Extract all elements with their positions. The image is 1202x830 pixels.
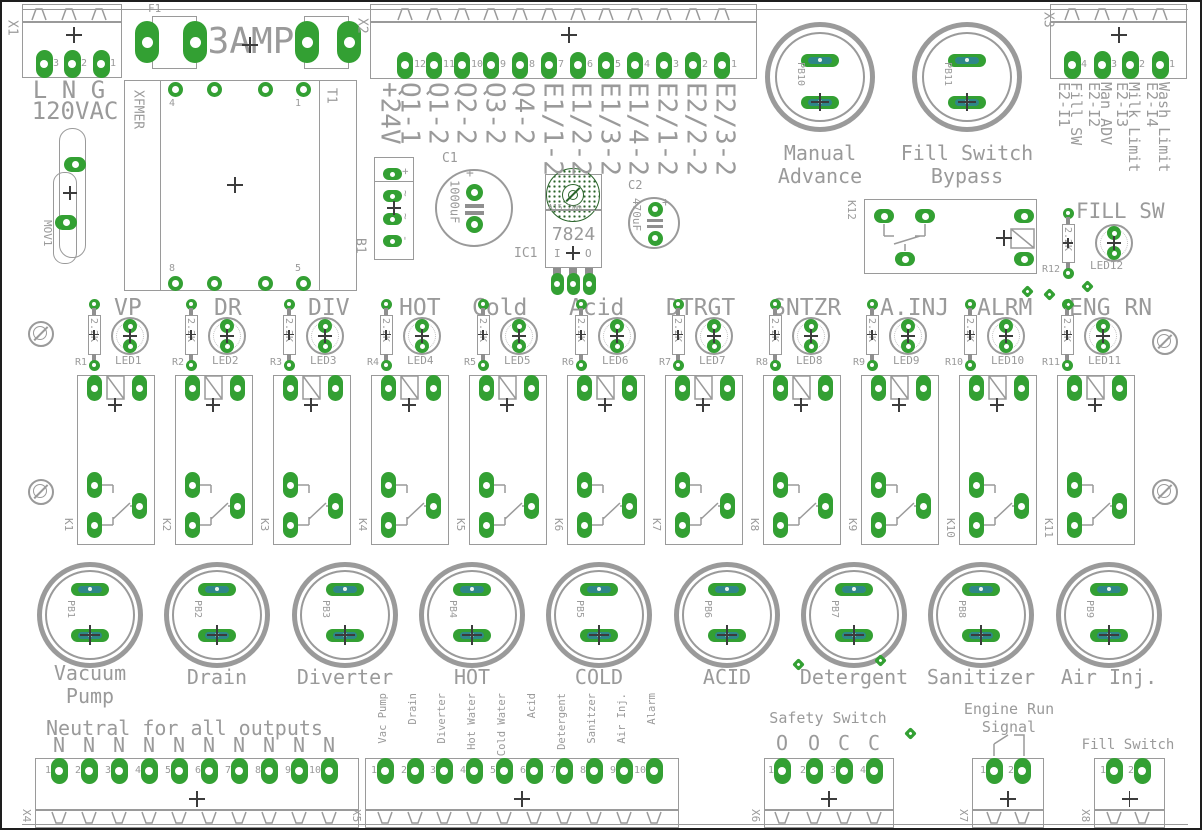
fuse-pad[interactable]	[183, 21, 207, 63]
pcb-layout-canvas[interactable]: 321X1LNG120VACF13AMP4185XFMERT1MOV1B1+~~…	[0, 0, 1202, 830]
x5-signal-label: Air Inj.	[619, 693, 627, 744]
origin-cross	[387, 201, 401, 215]
relay-k6-ref: K6	[554, 518, 562, 531]
x2-pin-number: 2	[702, 60, 708, 70]
x4-pin-number: 5	[155, 766, 171, 776]
fuse-pad[interactable]	[135, 21, 159, 63]
mounting-hole[interactable]	[1152, 329, 1178, 355]
relay-k6-pad[interactable]	[577, 375, 592, 401]
mounting-hole[interactable]	[28, 321, 54, 347]
led-led4-ref: LED4	[407, 355, 434, 366]
led-led1-ref: LED1	[115, 355, 142, 366]
resistor-r11-pad[interactable]	[1062, 360, 1073, 371]
relay-k6-pad[interactable]	[622, 493, 637, 519]
relay-k10-pad[interactable]	[1014, 375, 1029, 401]
pad-x3-3[interactable]	[1094, 51, 1111, 79]
resistor-r3-pad[interactable]	[284, 360, 295, 371]
bridge-pin-label: ~	[401, 213, 409, 220]
button-pb11-label: Bypass	[887, 166, 1047, 186]
button-pb5-pad[interactable]	[580, 583, 618, 596]
resistor-r6-pad[interactable]	[576, 360, 587, 371]
bridge-pin-label: ~	[401, 190, 409, 197]
connector-x4-ref: X4	[22, 809, 30, 822]
origin-cross	[512, 329, 526, 343]
x7-pin-number: 2	[998, 766, 1014, 776]
pad-x2-11[interactable]	[426, 52, 442, 79]
relay-k1-pad[interactable]	[132, 375, 147, 401]
cap1-polarity-bar	[465, 211, 484, 215]
x5-signal-label: Sanitzer	[589, 693, 597, 744]
relay-k6-pad[interactable]	[622, 375, 637, 401]
relay-k10-pad[interactable]	[969, 375, 984, 401]
x5-pin-number: 10	[630, 766, 646, 776]
button-pb8-pad[interactable]	[962, 583, 1000, 596]
pad-x2-8[interactable]	[512, 52, 528, 79]
resistor-r4-pad[interactable]	[381, 360, 392, 371]
transformer-pad[interactable]	[168, 82, 183, 97]
x2-wire-openings	[370, 4, 757, 22]
origin-cross	[999, 329, 1013, 343]
cap2-value: 470uF	[632, 198, 640, 231]
relay-k9-pad[interactable]	[871, 375, 886, 401]
transformer-pad[interactable]	[258, 276, 273, 291]
pad-x2-12[interactable]	[397, 52, 413, 79]
connector-x2-ref: X2	[357, 18, 366, 34]
regulator-pin-in: I	[554, 248, 561, 259]
x4-wire-label: N	[79, 735, 99, 755]
origin-cross	[284, 330, 294, 340]
x2-signal-label: Q3-2	[485, 82, 504, 145]
led-led9-ref: LED9	[893, 355, 920, 366]
pad-x2-5[interactable]	[598, 52, 614, 79]
x2-signal-label: Q2-2	[456, 82, 475, 145]
origin-cross	[598, 398, 612, 412]
relay-k3-pad[interactable]	[283, 472, 298, 498]
relay-k3-pad[interactable]	[328, 375, 343, 401]
via[interactable]	[1081, 280, 1094, 293]
pad-x2-2[interactable]	[685, 52, 701, 79]
origin-cross	[462, 625, 482, 645]
relay-k4-pad[interactable]	[381, 375, 396, 401]
relay-k12-pad[interactable]	[1014, 209, 1034, 223]
transformer-pin-number: 1	[295, 99, 301, 109]
relay-k1-ref: K1	[64, 518, 72, 531]
x1-voltage-label: 120VAC	[31, 99, 119, 123]
led-led5-ref: LED5	[504, 355, 531, 366]
bridge-pin-label: +	[401, 168, 409, 175]
x2-pin-number: 4	[644, 60, 650, 70]
relay-k5-pad[interactable]	[524, 375, 539, 401]
cap2-polarity: +	[662, 196, 669, 208]
regulator-pin-out: O	[585, 248, 592, 259]
origin-cross	[318, 329, 332, 343]
relay-k5-pad[interactable]	[479, 472, 494, 498]
x5-signal-label: Acid	[529, 693, 537, 718]
varistor-pad[interactable]	[55, 215, 77, 230]
relay-k4-pad[interactable]	[426, 493, 441, 519]
relay-k12-pad[interactable]	[915, 209, 935, 223]
pad-x8-2[interactable]	[1134, 758, 1151, 784]
transformer-pad[interactable]	[207, 82, 222, 97]
transformer-pad[interactable]	[258, 82, 273, 97]
relay-k8-pad[interactable]	[773, 512, 788, 538]
resistor-r10-pad[interactable]	[965, 360, 976, 371]
button-pb6-ref: PB6	[704, 600, 711, 618]
relay-k1-pad[interactable]	[87, 472, 102, 498]
x5-pin-number: 9	[600, 766, 616, 776]
cap1-pad[interactable]	[466, 184, 483, 201]
x8-title: Fill Switch	[1068, 738, 1188, 752]
fill-sw-title: FILL SW	[1076, 201, 1165, 222]
origin-cross	[108, 398, 122, 412]
cap1-ref: C1	[442, 152, 458, 165]
x4-wire-label: N	[169, 735, 189, 755]
x2-pin-number: 3	[673, 60, 679, 70]
x8-pin-number: 2	[1118, 766, 1134, 776]
relay-k9-pad[interactable]	[871, 472, 886, 498]
x4-wire-label: N	[319, 735, 339, 755]
button-pb2-ref: PB2	[194, 600, 201, 618]
pad-x3-2[interactable]	[1122, 51, 1139, 79]
resistor-r5-pad[interactable]	[478, 360, 489, 371]
relay-k5-pad[interactable]	[479, 375, 494, 401]
x3-signal-name: Fill SW	[1070, 82, 1081, 145]
x3-pin-number: 2	[1139, 60, 1145, 70]
origin-cross	[304, 398, 318, 412]
x8-wire-openings	[1094, 810, 1165, 828]
relay-k10-pad[interactable]	[969, 512, 984, 538]
origin-cross	[717, 625, 737, 645]
resistor-r4-ref: R4	[359, 358, 379, 368]
cap1-pad[interactable]	[466, 216, 483, 233]
origin-cross	[415, 329, 429, 343]
origin-cross	[990, 398, 1004, 412]
x5-wire-openings	[365, 810, 679, 828]
x6-wire-label: C	[864, 733, 884, 753]
origin-cross	[696, 398, 710, 412]
origin-cross	[1111, 27, 1127, 43]
origin-cross	[770, 330, 780, 340]
x5-signal-label: Vac Pump	[380, 693, 388, 744]
origin-cross	[402, 398, 416, 412]
mounting-hole[interactable]	[28, 479, 54, 505]
relay-k7-pad[interactable]	[675, 512, 690, 538]
relay-k10-ref: K10	[946, 518, 954, 538]
origin-cross	[867, 330, 877, 340]
cap1-polarity-bar	[465, 204, 484, 208]
button-pb10-label: Manual	[740, 143, 900, 163]
connector-x3-ref: X3	[1043, 12, 1052, 28]
x3-wire-openings	[1050, 4, 1187, 22]
fuse-pad[interactable]	[295, 21, 319, 63]
origin-cross	[996, 230, 1012, 246]
resistor-r1-pad[interactable]	[89, 360, 100, 371]
cap1-value: 1000uF	[450, 180, 459, 223]
button-pb10-ref: PB10	[797, 62, 804, 86]
resistor-r2-ref: R2	[164, 358, 184, 368]
cap1-body[interactable]	[435, 169, 513, 247]
x7-pin-number: 1	[970, 766, 986, 776]
relay-k10-pad[interactable]	[1014, 493, 1029, 519]
button-pb6-pad[interactable]	[708, 583, 746, 596]
varistor-pad[interactable]	[64, 157, 86, 172]
relay-k10-pad[interactable]	[969, 472, 984, 498]
x2-signal-label: E1/3-2	[600, 82, 619, 176]
relay-k4-pad[interactable]	[381, 472, 396, 498]
origin-cross	[189, 791, 205, 807]
button-pb5-ref: PB5	[576, 600, 583, 618]
relay-k4-pad[interactable]	[381, 512, 396, 538]
pad-x2-7[interactable]	[541, 52, 557, 79]
x2-signal-label: E2/1-2	[657, 82, 676, 176]
button-pb4-ref: PB4	[449, 600, 456, 618]
relay-k11-pad[interactable]	[1067, 375, 1082, 401]
x4-wire-label: N	[139, 735, 159, 755]
origin-cross	[1096, 329, 1110, 343]
x3-pin-number: 4	[1081, 60, 1087, 70]
pad-x6-1[interactable]	[774, 758, 791, 784]
x4-pin-number: 10	[305, 766, 321, 776]
relay-k3-pad[interactable]	[283, 375, 298, 401]
pad-x4-10[interactable]	[321, 758, 338, 784]
pad-x2-3[interactable]	[656, 52, 672, 79]
pad-x2-6[interactable]	[570, 52, 586, 79]
relay-k2-pad[interactable]	[185, 472, 200, 498]
x4-pin-number: 4	[125, 766, 141, 776]
x3-pin-number: 1	[1169, 60, 1175, 70]
relay-k3-pad[interactable]	[283, 512, 298, 538]
button-pb9-ref: PB9	[1086, 600, 1093, 618]
resistor-r12-pad[interactable]	[1063, 268, 1074, 279]
relay-k3-pad[interactable]	[328, 493, 343, 519]
relay-k4-pad[interactable]	[426, 375, 441, 401]
x5-signal-label: Drain	[410, 693, 418, 725]
origin-cross	[610, 329, 624, 343]
pad-x6-4[interactable]	[866, 758, 883, 784]
relay-k9-ref: K9	[848, 518, 856, 531]
origin-cross	[1122, 791, 1138, 807]
x1-pin-number: 3	[53, 59, 59, 69]
origin-cross	[958, 93, 976, 111]
relay-k2-pad[interactable]	[185, 375, 200, 401]
relay-k7-pad[interactable]	[675, 472, 690, 498]
origin-cross	[206, 398, 220, 412]
x6-wire-openings	[764, 810, 894, 828]
led-led8-ref: LED8	[796, 355, 823, 366]
origin-cross	[794, 398, 808, 412]
led-led2-ref: LED2	[212, 355, 239, 366]
relay-k12-pad[interactable]	[1014, 252, 1034, 266]
origin-cross	[892, 398, 906, 412]
resistor-r3-ref: R3	[262, 358, 282, 368]
pad-x2-10[interactable]	[454, 52, 470, 79]
x2-signal-label: Q1-2	[428, 82, 447, 145]
transformer-pad[interactable]	[207, 276, 222, 291]
cap2-pad[interactable]	[648, 231, 663, 246]
resistor-r8-ref: R8	[748, 358, 768, 368]
relay-k9-pad[interactable]	[916, 493, 931, 519]
relay-k12-ref: K12	[847, 200, 855, 220]
transformer-pad[interactable]	[296, 82, 311, 97]
origin-cross	[589, 625, 609, 645]
x2-pin-number: 12	[414, 60, 426, 70]
led-led3-ref: LED3	[310, 355, 337, 366]
connector-x6-ref: X6	[751, 809, 759, 822]
origin-cross	[804, 329, 818, 343]
x6-pin-number: 3	[820, 766, 836, 776]
x4-wire-label: N	[229, 735, 249, 755]
pad-x1-2[interactable]	[64, 50, 81, 78]
bridge-divider	[374, 181, 414, 182]
relay-k11-pad[interactable]	[1067, 512, 1082, 538]
led-led7-ref: LED7	[699, 355, 726, 366]
button-pb2-pad[interactable]	[198, 583, 236, 596]
pad-x2-1[interactable]	[714, 52, 730, 79]
regulator-pad[interactable]	[551, 273, 564, 295]
relay-k6-pad[interactable]	[577, 472, 592, 498]
x6-wire-label: C	[834, 733, 854, 753]
x6-wire-label: O	[804, 733, 824, 753]
button-pb1-label: Pump	[10, 686, 170, 706]
x3-signal-name: Man ADV	[1100, 82, 1111, 145]
via[interactable]	[1043, 288, 1056, 301]
mounting-hole[interactable]	[1152, 479, 1178, 505]
relay-k11-pad[interactable]	[1112, 493, 1127, 519]
pad-x3-4[interactable]	[1064, 51, 1081, 79]
relay-k2-pad[interactable]	[230, 493, 245, 519]
x4-pin-number: 7	[215, 766, 231, 776]
via[interactable]	[904, 727, 917, 740]
pad-x3-1[interactable]	[1152, 51, 1169, 79]
x4-pin-number: 8	[245, 766, 261, 776]
origin-cross	[63, 186, 77, 200]
origin-cross	[1063, 238, 1073, 248]
origin-cross	[561, 27, 577, 43]
x4-wire-label: N	[289, 735, 309, 755]
relay-k7-pad[interactable]	[720, 375, 735, 401]
origin-cross	[514, 791, 530, 807]
regulator-pad[interactable]	[583, 273, 596, 295]
origin-cross	[1099, 625, 1119, 645]
origin-cross	[186, 330, 196, 340]
x2-pin-number: 8	[529, 60, 535, 70]
x5-signal-label: Cold Water	[499, 693, 507, 756]
origin-cross	[965, 330, 975, 340]
relay-k5-pad[interactable]	[479, 512, 494, 538]
resistor-r9-pad[interactable]	[867, 360, 878, 371]
led-led11-ref: LED11	[1088, 355, 1121, 366]
button-pb3-pad[interactable]	[326, 583, 364, 596]
button-pb9-pad[interactable]	[1090, 583, 1128, 596]
pad-x7-2[interactable]	[1014, 758, 1031, 784]
bridge-ref: B1	[355, 238, 364, 254]
relay-k1-pad[interactable]	[132, 493, 147, 519]
button-pb1-pad[interactable]	[71, 583, 109, 596]
x5-pin-number: 2	[391, 766, 407, 776]
origin-cross	[707, 329, 721, 343]
cap1-polarity: +	[466, 167, 474, 180]
x5-pin-number: 7	[540, 766, 556, 776]
x7-switch-symbol	[986, 731, 1032, 757]
resistor-r2-pad[interactable]	[186, 360, 197, 371]
origin-cross	[1062, 330, 1072, 340]
button-pb7-pad[interactable]	[835, 583, 873, 596]
relay-k2-pad[interactable]	[185, 512, 200, 538]
relay-k2-pad[interactable]	[230, 375, 245, 401]
relay-k8-pad[interactable]	[818, 375, 833, 401]
regulator-value: 7824	[547, 226, 600, 244]
resistor-r6-ref: R6	[554, 358, 574, 368]
relay-k12-pad[interactable]	[895, 252, 915, 266]
relay-k8-ref: K8	[750, 518, 758, 531]
pad-x2-9[interactable]	[483, 52, 499, 79]
origin-cross	[811, 93, 829, 111]
origin-cross	[566, 246, 580, 260]
resistor-r7-pad[interactable]	[673, 360, 684, 371]
relay-k11-pad[interactable]	[1112, 375, 1127, 401]
x2-signal-label: Q1-1	[400, 82, 419, 145]
origin-cross	[478, 330, 488, 340]
regulator-pad[interactable]	[567, 273, 580, 295]
relay-k9-pad[interactable]	[871, 512, 886, 538]
x5-pin-number: 5	[480, 766, 496, 776]
relay-k6-pad[interactable]	[577, 512, 592, 538]
pad-x1-1[interactable]	[93, 50, 110, 78]
x5-pin-number: 3	[420, 766, 436, 776]
relay-k7-pad[interactable]	[720, 493, 735, 519]
button-pb8-ref: PB8	[958, 600, 965, 618]
button-pb11-pad[interactable]	[948, 54, 986, 67]
varistor-ref: MOV1	[43, 220, 51, 247]
relay-k9-pad[interactable]	[916, 375, 931, 401]
indicator-label-a-inj: A.INJ	[880, 297, 949, 320]
cap2-polarity-bar	[647, 219, 663, 222]
origin-cross	[673, 330, 683, 340]
x5-pin-number: 4	[450, 766, 466, 776]
button-pb4-pad[interactable]	[453, 583, 491, 596]
pad-x1-3[interactable]	[36, 50, 53, 78]
pad-x2-4[interactable]	[627, 52, 643, 79]
origin-cross	[207, 625, 227, 645]
relay-k12-pad[interactable]	[874, 209, 894, 223]
x2-pin-number: 6	[587, 60, 593, 70]
cap2-pad[interactable]	[648, 202, 663, 217]
relay-k8-pad[interactable]	[773, 472, 788, 498]
relay-k8-pad[interactable]	[818, 493, 833, 519]
transformer-pad[interactable]	[168, 276, 183, 291]
x4-wire-label: N	[49, 735, 69, 755]
relay-k1-pad[interactable]	[87, 375, 102, 401]
resistor-r8-pad[interactable]	[770, 360, 781, 371]
relay-k8-pad[interactable]	[773, 375, 788, 401]
relay-k7-pad[interactable]	[675, 375, 690, 401]
pad-x5-10[interactable]	[646, 758, 663, 784]
x2-signal-label: E1/4-2	[628, 82, 647, 176]
cap2-ref: C2	[628, 179, 642, 191]
led-led10-ref: LED10	[991, 355, 1024, 366]
x5-pin-number: 1	[361, 766, 377, 776]
relay-k11-pad[interactable]	[1067, 472, 1082, 498]
x3-signal-name: Wash Limit	[1158, 82, 1169, 172]
regulator-ref: IC1	[514, 247, 537, 260]
button-pb10-pad[interactable]	[801, 54, 839, 67]
relay-k1-pad[interactable]	[87, 512, 102, 538]
x3-pin-number: 3	[1111, 60, 1117, 70]
relay-k2-ref: K2	[162, 518, 170, 531]
relay-k5-pad[interactable]	[524, 493, 539, 519]
origin-cross	[901, 329, 915, 343]
transformer-pad[interactable]	[296, 276, 311, 291]
